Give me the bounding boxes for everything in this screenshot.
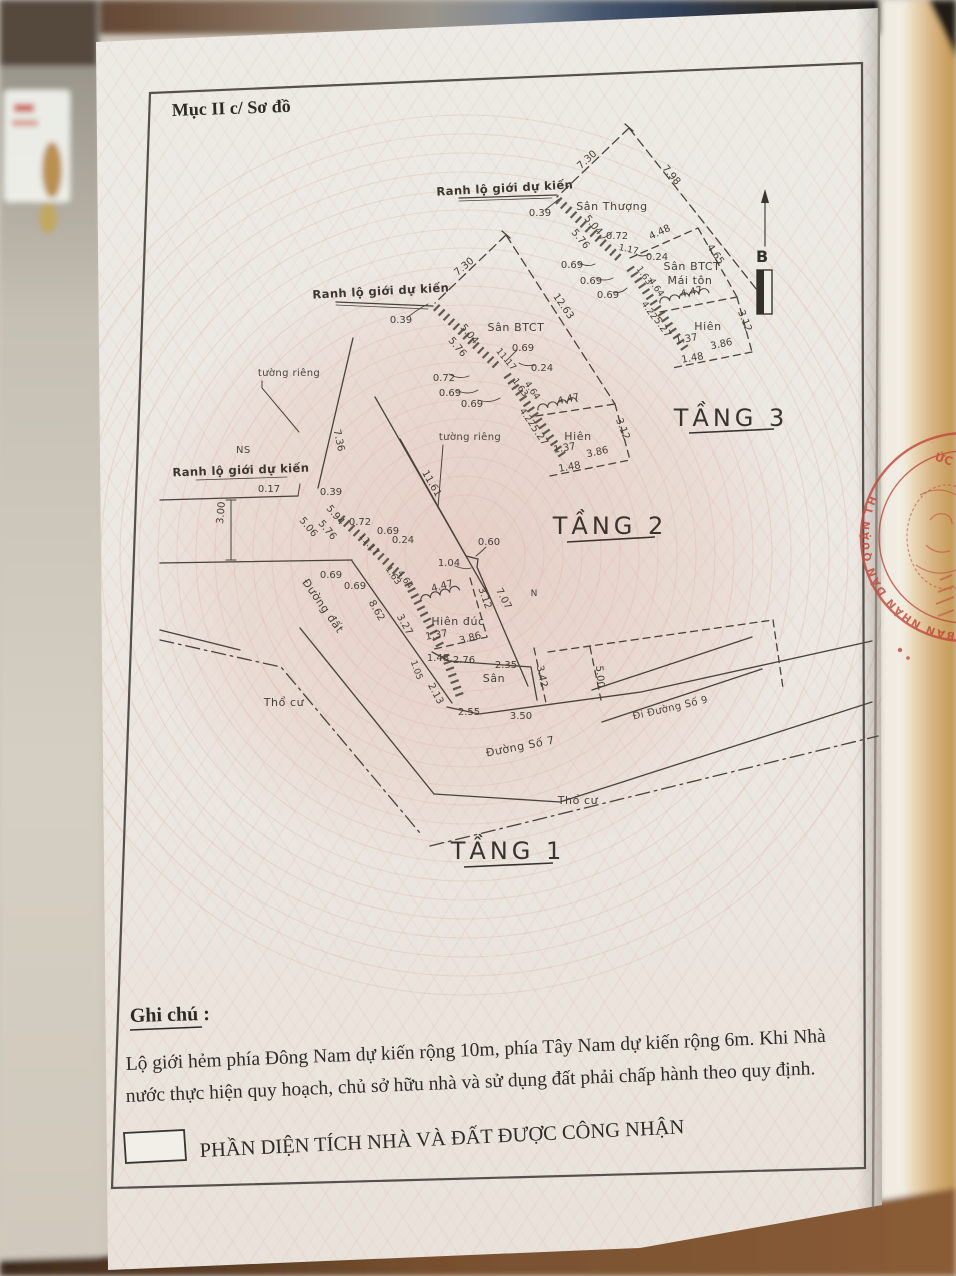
dim-label: 1.48 xyxy=(427,653,449,664)
dim-label: 0.39 xyxy=(390,315,412,326)
label-hien: Hiên xyxy=(564,430,591,443)
dim-label: 0.39 xyxy=(320,487,342,498)
label-tho-cu: Thổ cư xyxy=(557,794,599,807)
dim-label: 2.35 xyxy=(495,660,517,671)
floor1-title: TẦNG 1 xyxy=(450,833,566,865)
dim-label: 0.69 xyxy=(597,290,619,301)
dim-label: 0.60 xyxy=(478,537,500,548)
label-san-thuong: Sân Thượng xyxy=(576,200,648,213)
dim-label: 0.69 xyxy=(320,570,342,581)
dim-label: 0.69 xyxy=(580,276,602,287)
label-ns: NS xyxy=(236,445,251,456)
floor2-title: TẦNG 2 xyxy=(552,508,668,540)
underlying-page-edge xyxy=(881,0,909,1276)
label-n: N xyxy=(531,589,538,599)
dim-label: 5.00 xyxy=(593,665,606,688)
dim-label: 2.76 xyxy=(453,655,475,666)
floor3-title: TẦNG 3 xyxy=(673,400,789,432)
label-san: Sân xyxy=(483,672,506,685)
label-san-btct: Sân BTCT xyxy=(487,321,544,334)
label-san-btct: Sân BTCT xyxy=(663,260,720,273)
label-hien: Hiên xyxy=(694,320,721,333)
legend-swatch-box xyxy=(124,1130,186,1163)
dim-label: 0.72 xyxy=(349,517,371,528)
dim-label: 0.69 xyxy=(561,260,583,271)
dim-label: 0.24 xyxy=(646,252,668,263)
label-hien-duc: Hiên đúc xyxy=(431,615,484,628)
dim-label: 0.69 xyxy=(344,581,366,592)
dim-label: 1.04 xyxy=(438,558,460,569)
dim-label: 0.69 xyxy=(512,343,534,354)
dim-label: 0.72 xyxy=(606,231,628,242)
dim-label: 0.69 xyxy=(439,388,461,399)
label-mai-ton: Mái tôn xyxy=(668,274,713,287)
notes-heading: Ghi chú : xyxy=(130,1003,211,1027)
label-tho-cu: Thổ cư xyxy=(263,696,305,709)
dim-label: 0.17 xyxy=(258,484,280,495)
dim-label: 0.72 xyxy=(433,373,455,384)
dim-label: 0.39 xyxy=(529,208,551,219)
dim-label: 0.24 xyxy=(392,535,414,546)
section-title: Mục II c/ Sơ đồ xyxy=(171,96,291,120)
north-label: B xyxy=(756,247,768,266)
dim-label: 3.50 xyxy=(510,711,532,722)
dim-label: 2.55 xyxy=(458,707,480,718)
dim-label: 0.69 xyxy=(461,399,483,410)
label-tuong-rieng: tường riêng xyxy=(439,431,501,443)
dim-label: 3.00 xyxy=(215,501,228,524)
photo-of-document: Mục II c/ Sơ đồ xyxy=(0,0,956,1276)
dim-label: 0.24 xyxy=(531,363,553,374)
label-tuong-rieng: tường riêng xyxy=(258,367,320,379)
